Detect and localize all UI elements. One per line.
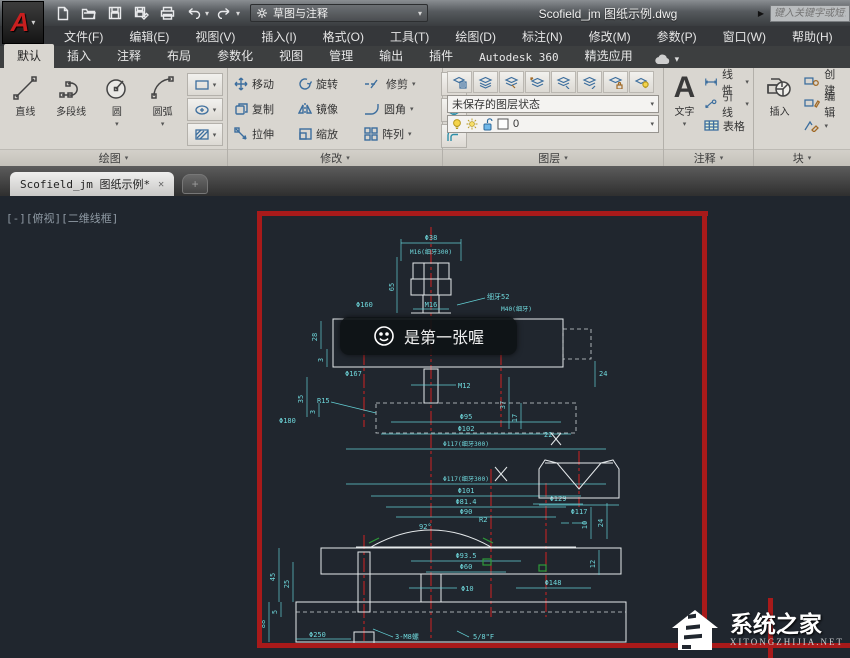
move-tool[interactable]: 移动 (232, 71, 294, 96)
redo-button[interactable] (213, 3, 235, 23)
window-title: Scofield_jm 图纸示例.dwg (428, 5, 758, 22)
move-label: 移动 (252, 76, 274, 92)
infocenter-expand-icon[interactable]: ▶ (758, 9, 764, 18)
application-menu-button[interactable]: A ▾ (2, 1, 44, 44)
layer-off-icon (582, 76, 597, 89)
table-label: 表格 (723, 118, 745, 134)
circle-label: 圆 (112, 103, 122, 118)
dim-v3b: 3 (309, 410, 317, 414)
menu-help[interactable]: 帮助(H) (780, 26, 845, 47)
hatch-tool[interactable]: ▾ (187, 123, 223, 146)
dim-r15: R15 (317, 397, 330, 405)
panel-title-draw[interactable]: 绘图 ▾ (0, 149, 227, 166)
modify-title-label: 修改 (320, 150, 342, 166)
text-dropdown-icon: ▾ (683, 120, 687, 128)
scale-icon (298, 127, 312, 141)
copy-icon (234, 102, 248, 116)
printer-icon (160, 6, 175, 20)
tab-plugins[interactable]: 插件 (416, 44, 466, 68)
sun-icon (466, 118, 478, 130)
dim-d814: Φ81.4 (455, 498, 476, 506)
dim-d38: Φ38 (425, 234, 438, 242)
leader-icon (704, 99, 718, 109)
rectangle-tool[interactable]: ▾ (187, 73, 223, 96)
tab-output[interactable]: 输出 (366, 44, 416, 68)
hatch-icon (194, 128, 210, 141)
layer-properties-button[interactable] (447, 71, 472, 93)
hatch-dropdown-icon: ▾ (213, 131, 217, 139)
layer-freeze-icon (556, 76, 571, 89)
workspace-dropdown-icon: ▾ (418, 9, 422, 18)
dim-v35: 35 (297, 395, 305, 403)
panel-title-annotate[interactable]: 注释 ▾ (664, 149, 753, 166)
modify-panel-caret-icon: ▾ (346, 154, 350, 162)
viewport-controls[interactable]: [-][俯视][二维线框] (6, 210, 118, 226)
tab-view[interactable]: 视图 (266, 44, 316, 68)
linear-dim-icon (704, 77, 718, 87)
arc-tool[interactable]: 圆弧 ▾ (141, 71, 184, 149)
arc-icon (150, 75, 176, 101)
save-as-button[interactable] (130, 3, 152, 23)
annotate-panel-caret-icon: ▾ (720, 154, 724, 162)
layer-stack-icon (478, 76, 493, 89)
workspace-label: 草图与注释 (273, 5, 328, 21)
cloud-dropdown-icon: ▾ (675, 54, 680, 65)
red-annotation-top (257, 211, 708, 216)
panel-annotate: A 文字 ▾ 线性▾ 引线▾ 表格 注释 ▾ (664, 68, 754, 166)
panel-block: 插入 创建 编辑 ▾ 块 ▾ (754, 68, 850, 166)
dim-d129: Φ129 (550, 495, 567, 503)
new-file-icon (56, 6, 70, 21)
tab-layout[interactable]: 布局 (154, 44, 204, 68)
mirror-icon (298, 102, 312, 116)
quick-access-toolbar: ▾ ▾ (52, 3, 240, 23)
dim-d101: Φ101 (458, 487, 475, 495)
save-icon (108, 6, 122, 20)
panel-title-layers[interactable]: 图层 ▾ (443, 149, 663, 166)
dim-d160: Φ160 (356, 301, 373, 309)
new-file-button[interactable] (52, 3, 74, 23)
copy-label: 复制 (252, 101, 274, 117)
layer-off-button[interactable] (577, 71, 602, 93)
cad-drawing: Φ38 M16(细牙300) 细牙52 65 M16 M40(细牙) Φ160 … (261, 217, 702, 643)
xitongzhijia-logo-icon (666, 606, 724, 654)
dim-note52: 细牙52 (487, 292, 509, 301)
close-tab-icon[interactable]: ✕ (158, 179, 164, 190)
draw-panel-caret-icon: ▾ (125, 154, 129, 162)
menu-dimension[interactable]: 标注(N) (510, 26, 575, 47)
unlock-icon (482, 118, 493, 131)
mirror-label: 镜像 (316, 101, 338, 117)
dim-d102: Φ102 (458, 425, 475, 433)
dim-d60: Φ60 (460, 563, 473, 571)
tab-home[interactable]: 默认 (4, 44, 54, 68)
current-layer-label: 0 (513, 118, 519, 130)
text-icon: A (674, 75, 696, 101)
mirror-tool[interactable]: 镜像 (296, 96, 360, 121)
dim-m8: 3-M8螺 (395, 632, 419, 641)
attributes-dropdown-icon: ▾ (824, 122, 828, 130)
trim-icon (364, 78, 382, 90)
plus-icon: + (192, 177, 199, 191)
menu-window[interactable]: 窗口(W) (711, 26, 778, 47)
move-icon (234, 77, 248, 91)
undo-icon (186, 7, 201, 19)
layer-properties-icon (452, 76, 467, 89)
trim-tool[interactable]: 修剪▾ (362, 71, 438, 96)
block-title-label: 块 (793, 150, 804, 166)
line-tool[interactable]: 直线 (4, 71, 47, 149)
red-annotation-right (702, 211, 707, 648)
drawing-tab[interactable]: Scofield_jm 图纸示例* ✕ (10, 172, 174, 196)
dim-d167: Φ167 (345, 370, 362, 378)
insert-block-icon (765, 75, 795, 101)
layer-caret-icon: ▾ (650, 120, 654, 128)
circle-tool[interactable]: 圆 ▾ (96, 71, 139, 149)
dim-d148: Φ148 (545, 579, 562, 587)
dim-v25: 25 (283, 580, 291, 588)
panel-title-modify[interactable]: 修改 ▾ (228, 149, 442, 166)
cloud-menu-button[interactable]: ▾ (646, 51, 688, 68)
table-tool[interactable]: 表格 (704, 115, 749, 136)
dim-d95: Φ95 (460, 413, 473, 421)
leader-dropdown-icon: ▾ (745, 100, 749, 108)
arc-dropdown-icon[interactable]: ▾ (161, 120, 165, 128)
layer-unisolate-button[interactable] (525, 71, 550, 93)
open-folder-icon (81, 7, 97, 20)
tab-manage[interactable]: 管理 (316, 44, 366, 68)
dim-m16: M16 (425, 301, 438, 309)
autocad-window: ▾ ▾ 草图与注释 ▾ Scofield_jm 图纸示例.dwg ▶ A ▾ 文… (0, 0, 850, 658)
dim-d90: Φ90 (460, 508, 473, 516)
watermark-subtitle: XITONGZHIJIA.NET (730, 638, 844, 648)
dim-detail-d117: Φ117 (571, 508, 588, 516)
redo-icon (217, 7, 232, 19)
polyline-icon (58, 75, 84, 101)
dim-v22: 22 (544, 431, 552, 439)
layer-isolate-button[interactable] (499, 71, 524, 93)
dim-v65: 65 (388, 283, 396, 291)
array-tool[interactable]: 阵列▾ (362, 121, 438, 146)
plot-button[interactable] (156, 3, 178, 23)
polyline-label: 多段线 (56, 103, 86, 118)
ellipse-icon (194, 104, 210, 116)
layer-lock-button[interactable] (603, 71, 628, 93)
menu-bar: 文件(F) 编辑(E) 视图(V) 插入(I) 格式(O) 工具(T) 绘图(D… (0, 26, 850, 46)
dim-d10: Φ10 (461, 585, 474, 593)
annotate-title-label: 注释 (694, 150, 716, 166)
layer-bulb-icon (634, 76, 649, 89)
rotate-icon (298, 77, 312, 91)
insert-label: 插入 (770, 103, 790, 118)
new-drawing-tab-button[interactable]: + (182, 174, 208, 194)
arc-label: 圆弧 (153, 103, 173, 118)
fillet-dropdown-icon: ▾ (410, 105, 414, 113)
dim-v10: 10 (581, 521, 589, 529)
bulb-on-icon (452, 118, 462, 131)
redo-dropdown[interactable]: ▾ (236, 9, 240, 18)
dim-f58: 5/8"F (473, 633, 494, 641)
rectangle-dropdown-icon: ▾ (213, 81, 217, 89)
layer-color-swatch (497, 118, 509, 130)
dim-v5: 5 (271, 610, 279, 614)
dim-m40: M40(细牙) (501, 305, 532, 313)
stretch-icon (234, 127, 248, 141)
insert-block-tool[interactable]: 插入 (758, 71, 802, 149)
array-dropdown-icon: ▾ (408, 130, 412, 138)
dim-v45: 45 (269, 573, 277, 581)
dim-v28: 28 (311, 333, 319, 341)
ellipse-tool[interactable]: ▾ (187, 98, 223, 121)
dim-v17: 17 (511, 414, 519, 422)
dim-v37: 37 (499, 401, 507, 409)
attributes-icon (804, 120, 820, 132)
draw-title-label: 绘图 (99, 150, 121, 166)
tab-insert[interactable]: 插入 (54, 44, 104, 68)
tooltip-text: 是第一张喔 (404, 324, 484, 348)
layer-dropdown[interactable]: 0 ▾ (447, 115, 659, 133)
text-label: 文字 (674, 103, 694, 118)
leader-tool[interactable]: 引线▾ (704, 93, 749, 114)
dim-d935: Φ93.5 (455, 552, 476, 560)
scale-tool[interactable]: 缩放 (296, 121, 360, 146)
dim-v3a: 3 (317, 358, 325, 362)
layer-lock-icon (608, 76, 623, 89)
rotate-tool[interactable]: 旋转 (296, 71, 360, 96)
layer-state-dropdown[interactable]: 未保存的图层状态 ▾ (447, 95, 659, 113)
gear-icon (256, 7, 268, 19)
array-label: 阵列 (382, 126, 404, 142)
undo-dropdown[interactable]: ▾ (205, 9, 209, 18)
app-menu-dropdown-icon: ▾ (31, 18, 35, 27)
file-tab-bar: Scofield_jm 图纸示例* ✕ + (0, 166, 850, 196)
open-file-button[interactable] (78, 3, 100, 23)
layer-freeze-button[interactable] (551, 71, 576, 93)
rectangle-icon (194, 79, 210, 91)
dim-m12: M12 (458, 382, 471, 390)
block-panel-caret-icon: ▾ (808, 154, 812, 162)
array-icon (364, 127, 378, 141)
undo-button[interactable] (182, 3, 204, 23)
rotate-label: 旋转 (316, 76, 338, 92)
annotation-tooltip: 是第一张喔 (340, 317, 517, 355)
panel-modify: 移动 旋转 修剪▾ 复制 镜像 圆角▾ 拉伸 缩放 阵列▾ 修改 (228, 68, 443, 166)
table-icon (704, 120, 719, 131)
menu-parametric[interactable]: 参数(P) (645, 26, 709, 47)
fillet-tool[interactable]: 圆角▾ (362, 96, 438, 121)
circle-dropdown-icon[interactable]: ▾ (115, 120, 119, 128)
dim-v24: 24 (599, 370, 607, 378)
polyline-tool[interactable]: 多段线 (50, 71, 93, 149)
linear-dropdown-icon: ▾ (745, 78, 749, 86)
panel-draw: 直线 多段线 圆 ▾ 圆弧 ▾ ▾ ▾ (0, 68, 228, 166)
cloud-icon (654, 54, 672, 65)
circle-icon (104, 75, 130, 101)
layer-state-button[interactable] (473, 71, 498, 93)
block-attributes-tool[interactable]: ▾ (804, 115, 846, 136)
edit-block-tool[interactable]: 编辑 (804, 93, 846, 114)
dim-d180: Φ180 (279, 417, 296, 425)
create-block-icon (804, 76, 820, 87)
dim-d117b: Φ117(细牙300) (443, 475, 489, 483)
fillet-icon (364, 103, 380, 115)
ellipse-dropdown-icon: ▾ (213, 106, 217, 114)
layer-unisolate-icon (530, 76, 545, 89)
tab-parametric[interactable]: 参数化 (204, 44, 266, 68)
dim-d250: Φ250 (309, 631, 326, 639)
text-tool[interactable]: A 文字 ▾ (668, 71, 701, 149)
panel-title-block[interactable]: 块 ▾ (754, 149, 850, 166)
ribbon: 直线 多段线 圆 ▾ 圆弧 ▾ ▾ ▾ (0, 68, 850, 166)
trim-label: 修剪 (386, 76, 408, 92)
workspace-switcher[interactable]: 草图与注释 ▾ (250, 4, 428, 22)
save-button[interactable] (104, 3, 126, 23)
layers-panel-caret-icon: ▾ (564, 154, 568, 162)
dim-a92: 92° (419, 523, 432, 531)
stretch-tool[interactable]: 拉伸 (232, 121, 294, 146)
dim-r2: R2 (479, 516, 487, 524)
scale-label: 缩放 (316, 126, 338, 142)
stretch-label: 拉伸 (252, 126, 274, 142)
layer-state-caret-icon: ▾ (650, 100, 654, 108)
search-input[interactable] (770, 5, 850, 22)
dim-v12: 12 (589, 560, 597, 568)
title-bar: ▾ ▾ 草图与注释 ▾ Scofield_jm 图纸示例.dwg ▶ (0, 0, 850, 26)
panel-layers: 未保存的图层状态 ▾ 0 ▾ 图层 (443, 68, 664, 166)
line-label: 直线 (15, 103, 35, 118)
watermark: 系统之家 XITONGZHIJIA.NET (666, 606, 844, 654)
tab-annotate[interactable]: 注释 (104, 44, 154, 68)
drawing-tab-label: Scofield_jm 图纸示例* (20, 176, 150, 192)
dim-d117a: Φ117(细牙300) (443, 440, 489, 448)
dim-m16fine: M16(细牙300) (410, 248, 452, 256)
trim-dropdown-icon: ▾ (412, 80, 416, 88)
save-as-icon (134, 6, 149, 20)
copy-tool[interactable]: 复制 (232, 96, 294, 121)
watermark-title: 系统之家 (730, 612, 844, 637)
edit-block-icon (804, 98, 820, 109)
layer-isolate-icon (504, 76, 519, 89)
red-annotation-left (257, 211, 262, 648)
layers-title-label: 图层 (538, 150, 560, 166)
tab-autodesk360[interactable]: Autodesk 360 (466, 48, 571, 68)
dim-v24b: 24 (597, 519, 605, 527)
autocad-logo: A (11, 7, 30, 38)
tab-featured-apps[interactable]: 精选应用 (572, 44, 646, 68)
fillet-label: 圆角 (384, 101, 406, 117)
infocenter: ▶ (758, 5, 850, 22)
line-icon (12, 75, 38, 101)
layer-state-label: 未保存的图层状态 (452, 96, 540, 112)
layer-bulb-button[interactable] (629, 71, 654, 93)
smiley-icon (373, 325, 395, 347)
